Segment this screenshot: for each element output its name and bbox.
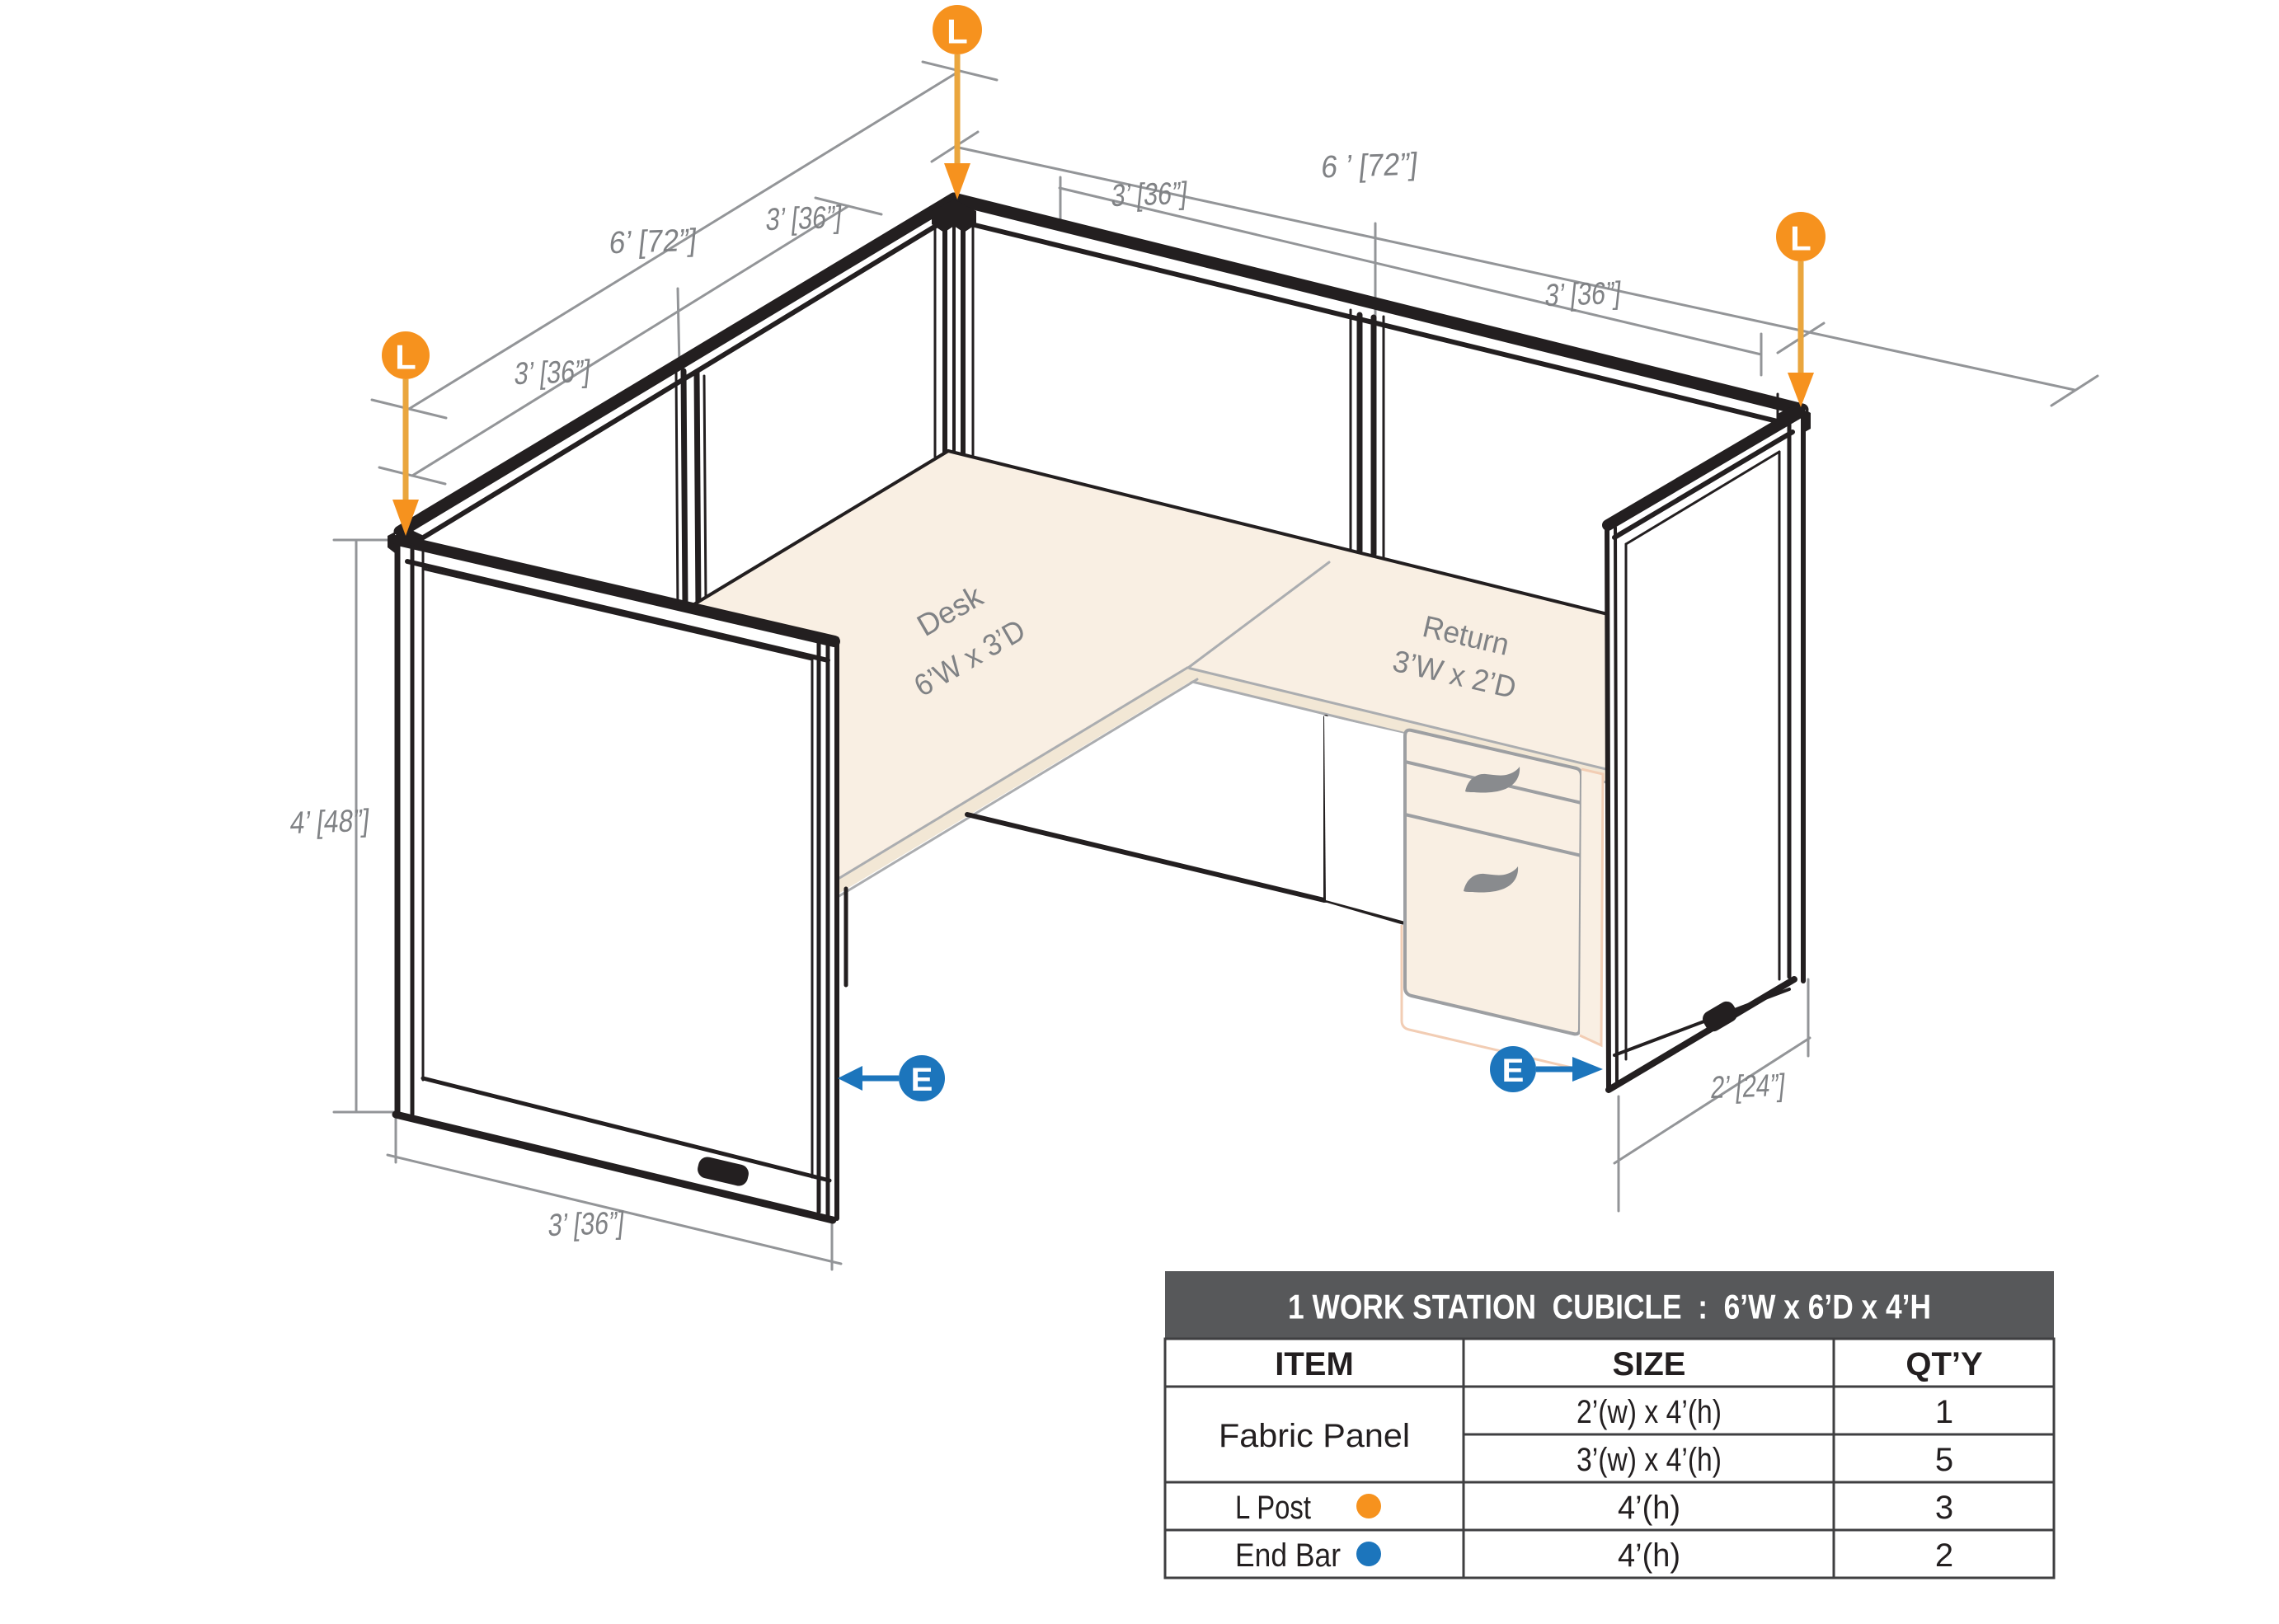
- svg-text:1: 1: [1935, 1394, 1953, 1430]
- svg-text:ITEM: ITEM: [1275, 1346, 1354, 1382]
- svg-text:6’ [72”]: 6’ [72”]: [608, 223, 698, 261]
- svg-text:4’(h): 4’(h): [1618, 1490, 1680, 1526]
- svg-text:3’ [36”]: 3’ [36”]: [513, 354, 592, 392]
- svg-text:3’ [36”]: 3’ [36”]: [764, 199, 843, 237]
- svg-text:2’(w) x 4’(h): 2’(w) x 4’(h): [1577, 1394, 1722, 1430]
- svg-text:3’ [36”]: 3’ [36”]: [1544, 275, 1623, 313]
- svg-text:4’(h): 4’(h): [1618, 1537, 1680, 1574]
- svg-text:6 ’ [72”]: 6 ’ [72”]: [1319, 146, 1419, 185]
- svg-text:2’ [24”]: 2’ [24”]: [1709, 1068, 1787, 1105]
- svg-text:End Bar: End Bar: [1235, 1537, 1341, 1574]
- svg-text:5: 5: [1935, 1442, 1953, 1478]
- svg-text:3’(w) x 4’(h): 3’(w) x 4’(h): [1577, 1442, 1722, 1478]
- svg-text:L Post: L Post: [1235, 1490, 1311, 1526]
- svg-text:SIZE: SIZE: [1613, 1346, 1686, 1382]
- svg-text:E: E: [911, 1062, 933, 1098]
- svg-text:E: E: [1502, 1053, 1525, 1089]
- svg-text:3’ [36”]: 3’ [36”]: [1110, 176, 1189, 214]
- svg-text:L: L: [947, 12, 968, 51]
- svg-text:2: 2: [1935, 1537, 1953, 1574]
- svg-text:QT’Y: QT’Y: [1905, 1346, 1983, 1382]
- svg-text:L: L: [395, 338, 416, 377]
- svg-text:3: 3: [1935, 1490, 1953, 1526]
- svg-text:4’ [48”]: 4’ [48”]: [289, 803, 371, 841]
- svg-text:L: L: [1790, 219, 1811, 258]
- svg-text:1 WORK STATION CUBICLE : 6’: 1 WORK STATION CUBICLE : 6’W x 6’D x 4’H: [1288, 1288, 1931, 1326]
- svg-text:Fabric Panel: Fabric Panel: [1219, 1418, 1410, 1454]
- svg-text:3’ [36”]: 3’ [36”]: [547, 1205, 626, 1243]
